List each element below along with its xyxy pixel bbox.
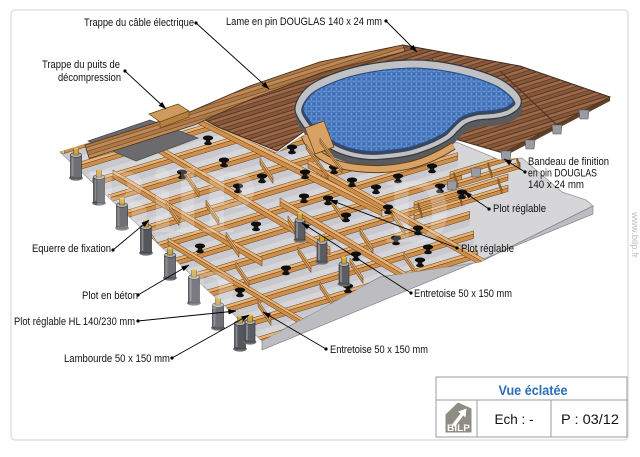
- svg-text:Lambourde 50 x 150 mm: Lambourde 50 x 150 mm: [64, 353, 170, 365]
- svg-text:P : 03/12: P : 03/12: [561, 411, 619, 427]
- svg-text:Vue éclatée: Vue éclatée: [499, 383, 568, 398]
- svg-text:Plot réglable HL 140/230 mm: Plot réglable HL 140/230 mm: [14, 316, 135, 328]
- svg-text:Plot réglable: Plot réglable: [493, 203, 546, 215]
- svg-text:BilP: BilP: [88, 150, 257, 252]
- svg-text:Equerre de fixation: Equerre de fixation: [32, 243, 111, 255]
- svg-text:Bandeau de finition: Bandeau de finition: [528, 156, 609, 168]
- svg-text:décompression: décompression: [58, 72, 121, 84]
- svg-text:Trappe du puits de: Trappe du puits de: [42, 59, 120, 71]
- svg-text:Entretoise 50 x 150 mm: Entretoise 50 x 150 mm: [330, 344, 428, 356]
- svg-text:Trappe du câble électrique: Trappe du câble électrique: [84, 17, 194, 29]
- svg-text:BILP: BILP: [447, 423, 470, 433]
- svg-text:www.bilp.fr: www.bilp.fr: [629, 211, 640, 258]
- svg-text:Lame en pin DOUGLAS 140 x 24 m: Lame en pin DOUGLAS 140 x 24 mm: [226, 16, 382, 28]
- svg-text:Plot réglable: Plot réglable: [461, 243, 514, 255]
- svg-text:Ech : -: Ech : -: [494, 412, 533, 427]
- svg-text:140 x 24 mm: 140 x 24 mm: [528, 179, 584, 191]
- svg-text:en pin DOUGLAS: en pin DOUGLAS: [528, 168, 597, 180]
- svg-text:D: D: [385, 160, 451, 262]
- svg-text:Entretoise 50 x 150 mm: Entretoise 50 x 150 mm: [414, 288, 512, 300]
- svg-text:Plot en béton: Plot en béton: [82, 290, 138, 302]
